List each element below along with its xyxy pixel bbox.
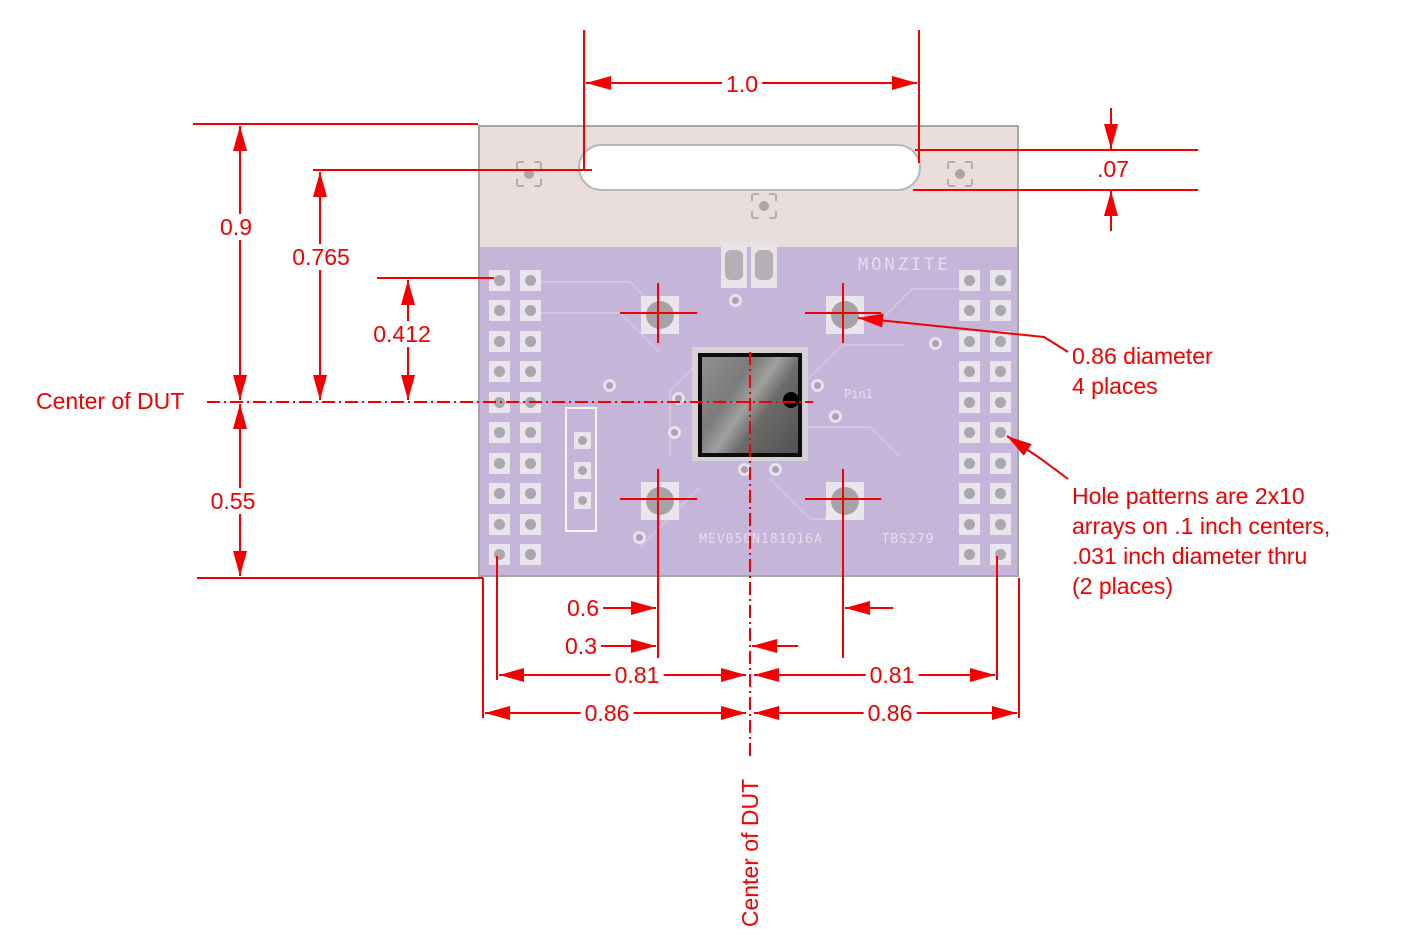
note-line: .031 inch diameter thru: [1072, 541, 1330, 571]
note-line: 4 places: [1072, 371, 1213, 401]
note-mounting-hole: 0.86 diameter 4 places: [1072, 341, 1213, 401]
dim-center-to-hole-col-left: 0.81: [611, 662, 664, 688]
via-pad: [729, 294, 742, 307]
through-hole: [489, 300, 510, 321]
through-hole: [520, 392, 541, 413]
silkscreen-pin1-label: Pin1: [844, 387, 873, 401]
through-hole: [520, 361, 541, 382]
through-hole: [990, 300, 1011, 321]
pin1-dot: [783, 392, 799, 408]
centerline-label-vertical: Center of DUT: [737, 779, 763, 927]
connector-pad: [574, 432, 591, 449]
through-hole: [520, 422, 541, 443]
slot-cutout: [578, 144, 921, 191]
through-hole: [990, 392, 1011, 413]
through-hole: [520, 514, 541, 535]
via-pad: [603, 379, 616, 392]
dut-chip: [698, 353, 802, 457]
fiducial-icon: [516, 161, 542, 187]
dim-center-to-hole-col-right: 0.81: [866, 662, 919, 688]
dim-hole-row-to-center: 0.412: [369, 321, 435, 347]
via-pad: [633, 531, 646, 544]
through-hole: [520, 483, 541, 504]
dim-center-to-edge-left: 0.86: [581, 700, 634, 726]
mounting-hole: [826, 296, 864, 334]
connector-pad: [574, 492, 591, 509]
component-pad: [721, 242, 747, 288]
via-pad: [672, 392, 685, 405]
through-hole: [489, 422, 510, 443]
note-line: 0.86 diameter: [1072, 341, 1213, 371]
drawing-canvas: MONZITE MEV050N181Q16A TBS279 Pin1: [0, 0, 1407, 948]
dim-center-to-mount-hole: 0.3: [561, 633, 601, 659]
connector-pad: [574, 462, 591, 479]
silkscreen-brand: MONZITE: [858, 255, 951, 275]
through-hole: [990, 544, 1011, 565]
silkscreen-part-number: MEV050N181Q16A: [695, 532, 827, 547]
fiducial-icon: [751, 193, 777, 219]
through-hole: [520, 300, 541, 321]
via-pad: [829, 410, 842, 423]
through-hole: [489, 544, 510, 565]
through-hole: [520, 331, 541, 352]
note-line: Hole patterns are 2x10: [1072, 481, 1330, 511]
through-hole: [990, 361, 1011, 382]
through-hole: [959, 361, 980, 382]
mounting-hole: [641, 482, 679, 520]
through-hole: [959, 422, 980, 443]
through-hole: [489, 483, 510, 504]
component-pad: [751, 242, 777, 288]
through-hole: [990, 483, 1011, 504]
through-hole: [959, 514, 980, 535]
component-body: [725, 250, 743, 280]
through-hole: [489, 453, 510, 474]
dim-slot-width: .07: [1093, 156, 1133, 182]
through-hole: [489, 392, 510, 413]
silkscreen-board-id: TBS279: [875, 532, 941, 547]
through-hole: [959, 331, 980, 352]
through-hole: [520, 453, 541, 474]
pcb-board: MONZITE MEV050N181Q16A TBS279 Pin1: [478, 125, 1019, 577]
through-hole: [489, 514, 510, 535]
via-pad: [811, 379, 824, 392]
through-hole: [959, 544, 980, 565]
dim-center-to-bottom: 0.55: [207, 488, 260, 514]
through-hole: [990, 514, 1011, 535]
through-hole: [959, 392, 980, 413]
through-hole: [489, 361, 510, 382]
dim-mount-hole-spacing: 0.6: [563, 595, 603, 621]
via-pad: [769, 463, 782, 476]
through-hole: [990, 453, 1011, 474]
through-hole: [520, 544, 541, 565]
mounting-hole: [826, 482, 864, 520]
via-pad: [929, 337, 942, 350]
through-hole: [489, 270, 510, 291]
through-hole: [959, 300, 980, 321]
through-hole: [990, 331, 1011, 352]
dim-center-to-edge-right: 0.86: [864, 700, 917, 726]
through-hole: [489, 331, 510, 352]
note-line: (2 places): [1072, 571, 1330, 601]
via-pad: [738, 463, 751, 476]
note-line: arrays on .1 inch centers,: [1072, 511, 1330, 541]
through-hole: [990, 270, 1011, 291]
dim-slot-to-center: 0.765: [288, 244, 354, 270]
mounting-hole: [641, 296, 679, 334]
through-hole: [959, 483, 980, 504]
dim-top-to-center: 0.9: [216, 214, 256, 240]
through-hole: [959, 270, 980, 291]
through-hole: [959, 453, 980, 474]
note-hole-pattern: Hole patterns are 2x10 arrays on .1 inch…: [1072, 481, 1330, 601]
centerline-label-horizontal: Center of DUT: [36, 388, 184, 414]
dim-slot-length: 1.0: [722, 71, 762, 97]
through-hole: [520, 270, 541, 291]
via-pad: [668, 426, 681, 439]
through-hole: [990, 422, 1011, 443]
fiducial-icon: [947, 161, 973, 187]
component-body: [755, 250, 773, 280]
